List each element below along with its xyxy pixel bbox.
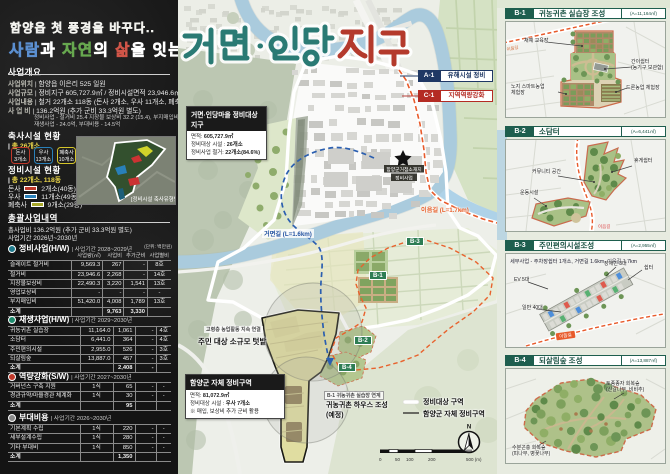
svg-text:200: 200	[428, 457, 436, 462]
svg-text:50: 50	[395, 457, 401, 462]
svg-text:이음길: 이음길	[598, 223, 610, 230]
svg-text:함양군거점소재지: 함양군거점소재지	[386, 166, 421, 173]
svg-text:500 (m): 500 (m)	[466, 457, 482, 462]
svg-text:100: 100	[406, 457, 414, 462]
svg-text:[정비시설 축사유형별 위치도]: [정비시설 축사유형별 위치도]	[131, 195, 176, 203]
svg-text:N: N	[467, 425, 471, 431]
svg-text:정비사업: 정비사업	[395, 174, 413, 181]
